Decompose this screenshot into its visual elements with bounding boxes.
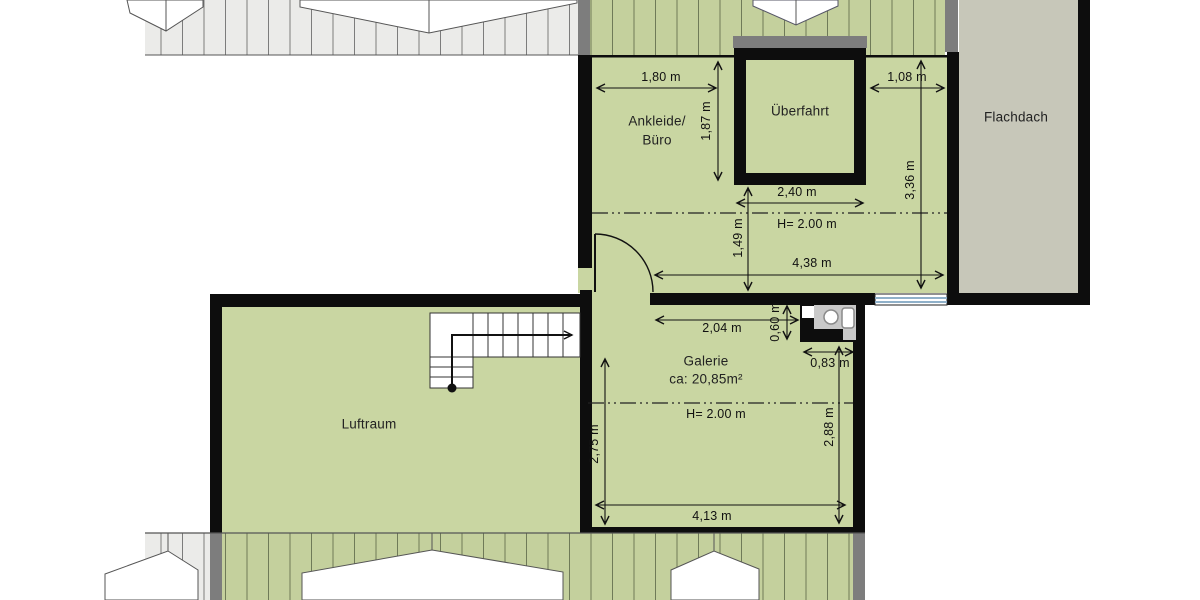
dim-ankleide-height: 1,87 m xyxy=(700,101,713,140)
dim-upper-ceiling-height: H= 2.00 m xyxy=(777,218,837,231)
room-label-flachdach: Flachdach xyxy=(984,110,1048,124)
floor-plan: Ankleide/ Büro Überfahrt Flachdach Galer… xyxy=(0,0,1200,600)
room-label-galerie-area: ca: 20,85m² xyxy=(669,372,742,386)
flat-roof xyxy=(947,0,1090,305)
dim-galerie-right-height: 2,88 m xyxy=(823,407,836,446)
room-label-galerie: Galerie xyxy=(684,354,729,368)
dim-ankleide-width: 1,80 m xyxy=(641,71,680,84)
ueberfahrt-top-grey-wall xyxy=(733,36,867,48)
dim-galerie-ceiling-height: H= 2.00 m xyxy=(686,408,746,421)
dim-galerie-left-height: 2,75 m xyxy=(588,424,601,463)
floor-plan-canvas xyxy=(0,0,1200,600)
dim-wc-width: 0,83 m xyxy=(810,357,849,370)
room-label-ankleide-line2: Büro xyxy=(642,133,671,147)
room-label-luftraum: Luftraum xyxy=(342,417,397,431)
dim-below-ueberfahrt-height: 1,49 m xyxy=(732,218,745,257)
dim-ueberfahrt-width: 2,40 m xyxy=(777,186,816,199)
room-label-ankleide-line1: Ankleide/ xyxy=(628,114,685,128)
window xyxy=(875,294,947,305)
dim-galerie-width: 4,13 m xyxy=(692,510,731,523)
room-label-ueberfahrt: Überfahrt xyxy=(771,104,829,118)
toilet-icon xyxy=(842,308,854,328)
dim-galerie-top-width: 2,04 m xyxy=(702,322,741,335)
dim-right-strip-width: 1,08 m xyxy=(887,71,926,84)
sink-icon xyxy=(824,310,838,324)
wc-fixture xyxy=(800,305,863,342)
dim-right-strip-height: 3,36 m xyxy=(904,160,917,199)
dim-wc-depth: 0,60 m xyxy=(769,302,782,341)
dim-upper-room-width: 4,38 m xyxy=(792,257,831,270)
